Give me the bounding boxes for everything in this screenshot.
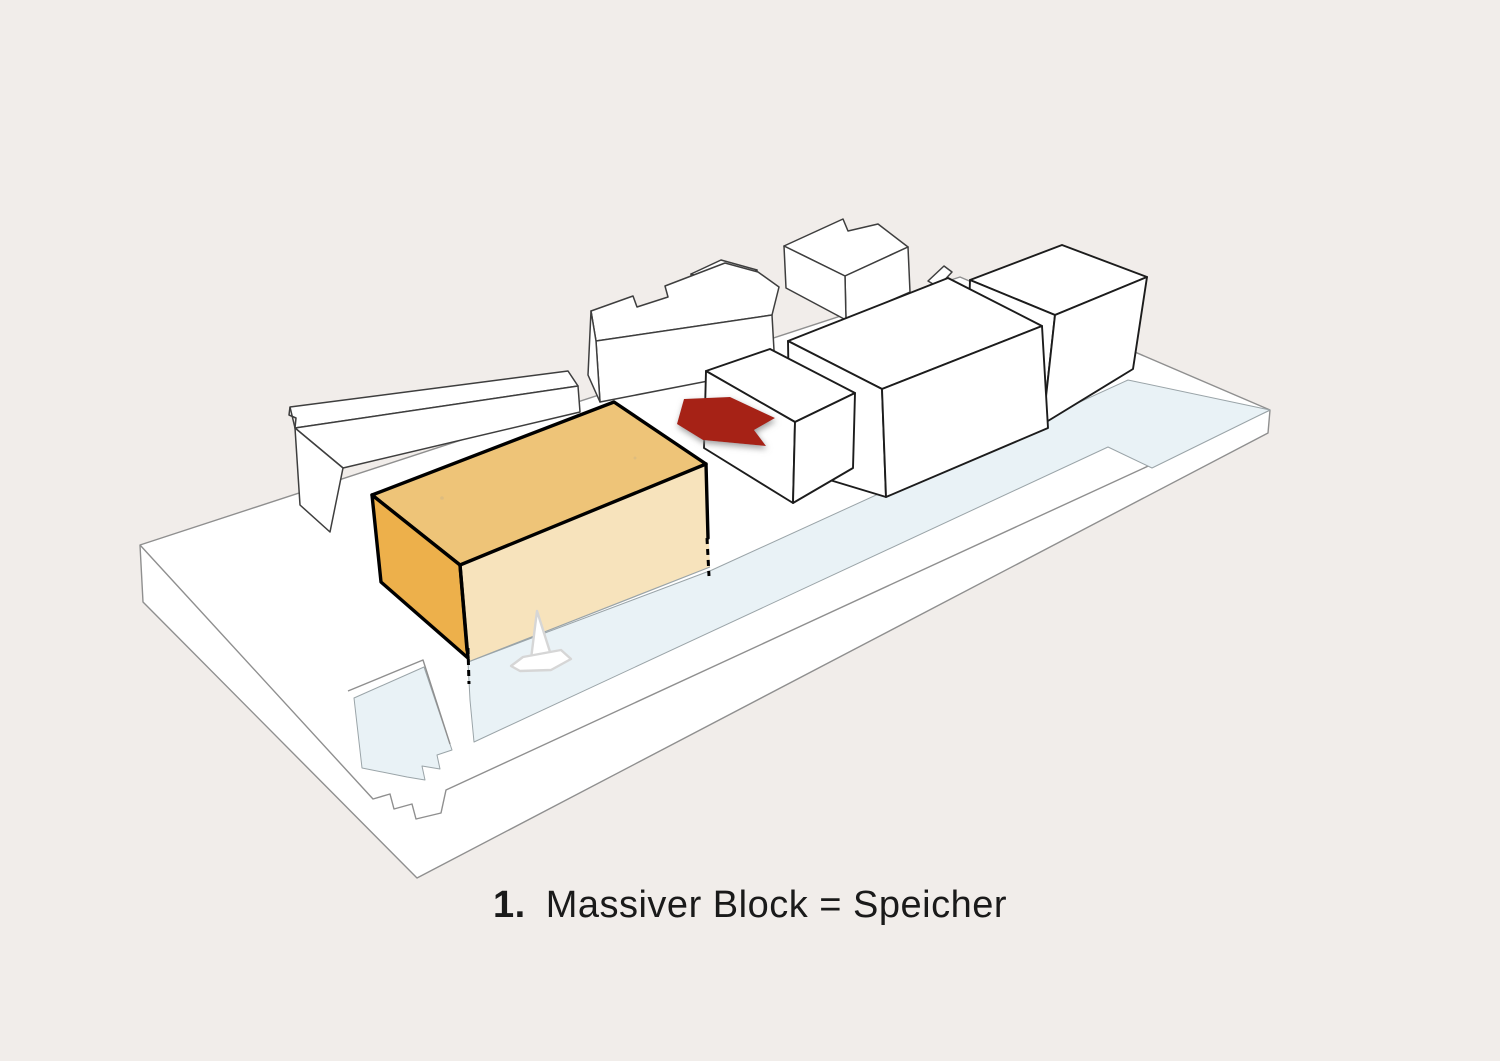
roof-speck xyxy=(634,457,637,460)
figure-caption: 1.Massiver Block = Speicher xyxy=(0,884,1500,927)
block-front-right-edge xyxy=(706,464,708,538)
caption-label: Massiver Block = Speicher xyxy=(546,884,1007,926)
caption-number: 1. xyxy=(493,884,526,926)
roof-speck xyxy=(440,496,444,500)
diagram-canvas: 1.Massiver Block = Speicher xyxy=(0,0,1500,1061)
